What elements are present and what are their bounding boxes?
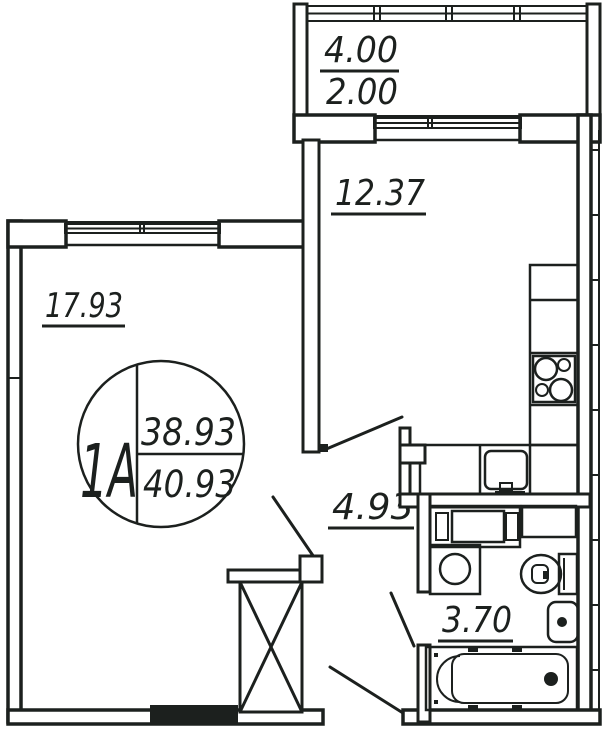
shaft-door-notch (300, 556, 322, 582)
living-top-wall-left (8, 221, 66, 247)
kitchen-door-leaf (324, 417, 402, 450)
balcony-window-icon (307, 6, 587, 21)
wall-segment (294, 115, 375, 142)
balcony-left-wall (294, 4, 307, 130)
balcony-area-label: 4.00 (324, 30, 398, 71)
stamp-living-area: 38.93 (141, 411, 236, 454)
balcony-right-wall (587, 4, 600, 130)
kitchen-sink-icon (485, 451, 527, 496)
toilet-icon (521, 554, 577, 594)
floor-plan: 4.00 2.00 (0, 0, 603, 734)
bottom-wall-block (150, 705, 238, 725)
balcony: 4.00 2.00 (294, 4, 600, 130)
bottom-wall-right (403, 710, 600, 724)
floor-plan-drawing: 4.00 2.00 (0, 0, 603, 734)
area-stamp: 1A 38.93 40.93 (78, 361, 244, 527)
vent-shaft (228, 556, 322, 712)
vanity-counter-icon (430, 506, 576, 547)
living-window-icon (65, 222, 220, 245)
bathroom-door-leaf (391, 593, 414, 646)
living-door-leaf (273, 497, 316, 560)
washing-machine-icon (430, 545, 480, 594)
stamp-total-area: 40.93 (143, 463, 236, 506)
washbasin-icon (548, 602, 578, 642)
kitchen: 12.37 (303, 140, 578, 497)
living-room: 17.93 1A 38.93 40.93 (42, 286, 316, 560)
bathtub-icon (426, 647, 577, 710)
kitchen-window-icon (374, 116, 521, 140)
left-wall (8, 221, 21, 722)
kitchen-living-partition (303, 140, 319, 452)
hallway: 4.93 (328, 428, 425, 713)
stamp-unit-label: 1A (80, 429, 138, 515)
hall-counter-jog (400, 445, 425, 463)
balcony-reduced-area-label: 2.00 (326, 72, 398, 113)
living-area-label: 17.93 (45, 286, 123, 326)
bathroom-left-wall-upper (418, 494, 430, 592)
bathroom: 3.70 (391, 494, 590, 722)
right-wall (578, 115, 591, 722)
kitchen-area-label: 12.37 (335, 173, 425, 214)
bathroom-area-label: 3.70 (442, 600, 512, 641)
living-top-wall-right (219, 221, 312, 247)
entry-door-leaf (330, 667, 403, 713)
stove-icon (533, 356, 575, 402)
kitchen-exterior-wall (294, 115, 600, 142)
